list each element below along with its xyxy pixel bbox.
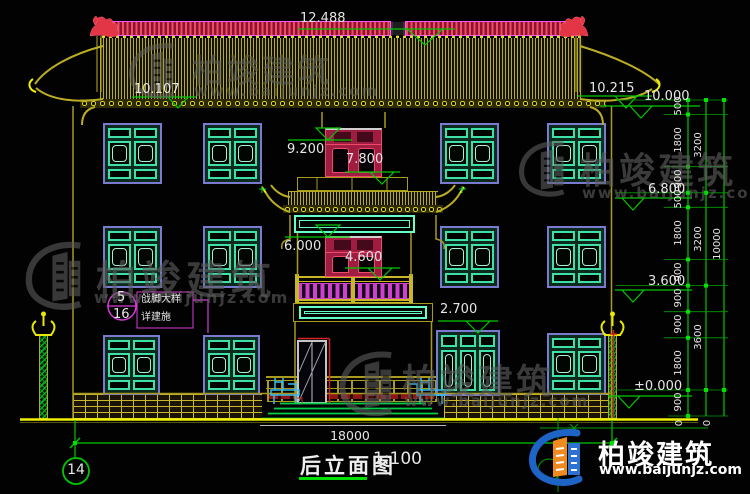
- dim-value: 900: [674, 387, 684, 417]
- level-attic-top: 9.200: [287, 143, 324, 156]
- ridge-finial-left: [90, 16, 119, 37]
- ridge-finial-right: [559, 16, 588, 37]
- overall-dimension: 18000: [322, 429, 378, 442]
- watermark-url: www.baijunjz.com: [404, 392, 589, 410]
- drawing-scale: 1:100: [373, 453, 422, 466]
- level-ground-window: 2.700: [440, 303, 477, 316]
- level-second-top: 6.000: [284, 240, 321, 253]
- dim-value: 1800: [674, 125, 684, 155]
- level-ridge: 12.488: [300, 12, 346, 25]
- level-eave-left: 10.107: [134, 83, 180, 96]
- dim-value: 900: [674, 309, 684, 339]
- dim-value: 3200: [694, 130, 704, 160]
- ground-line: [20, 420, 698, 426]
- lamp-cap-left: [33, 312, 55, 336]
- cad-elevation-drawing: 柏竣建筑 www.baijunjz.com 柏竣建筑 www.baijunjz.…: [0, 0, 750, 494]
- dim-value: 3600: [694, 322, 704, 352]
- axis-bubble-number: 14: [63, 464, 89, 477]
- dim-value: 1800: [674, 218, 684, 248]
- level-eave-right: 10.215: [589, 82, 635, 95]
- dim-value: 0: [675, 415, 685, 431]
- dim-value: 0: [703, 415, 713, 431]
- dim-value: 500: [674, 184, 684, 214]
- brand-logo-url: www.baijunjz.com: [599, 462, 742, 478]
- entry-door-linework: [296, 339, 330, 405]
- callout-text-1: 戗脚大样: [141, 295, 181, 305]
- dim-value: 1800: [674, 348, 684, 378]
- title-underline: [299, 477, 367, 480]
- callout-number: 5: [117, 291, 125, 304]
- callout-text-2: 详建施: [141, 313, 171, 323]
- lamp-cap-right: [602, 312, 624, 336]
- dim-value: 3200: [694, 224, 704, 254]
- dim-value: 10000: [713, 226, 723, 262]
- level-attic-sill: 7.800: [346, 153, 383, 166]
- roof-eaves: [29, 36, 660, 125]
- level-second-sill: 4.600: [345, 251, 382, 264]
- drawing-linework: [0, 0, 750, 494]
- callout-sheet: 16: [113, 308, 130, 321]
- watermark-url: www.baijunjz.com: [194, 82, 379, 100]
- dim-value: 500: [674, 91, 684, 121]
- brand-logo-icon: [532, 432, 580, 482]
